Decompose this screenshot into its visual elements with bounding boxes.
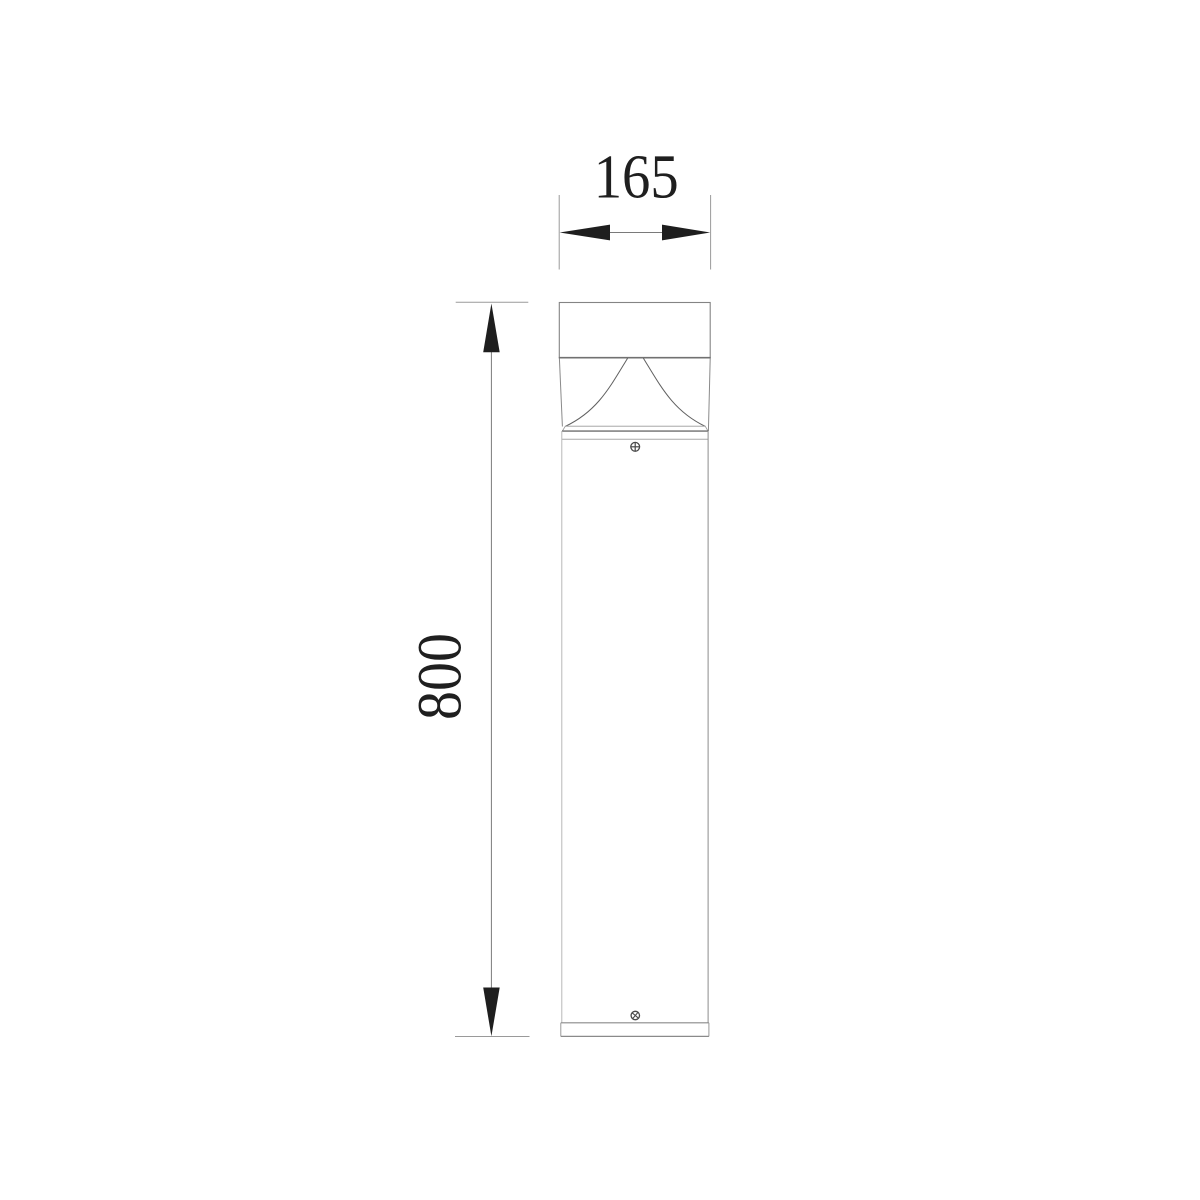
svg-text:165: 165 bbox=[594, 144, 679, 212]
svg-text:800: 800 bbox=[407, 633, 475, 720]
